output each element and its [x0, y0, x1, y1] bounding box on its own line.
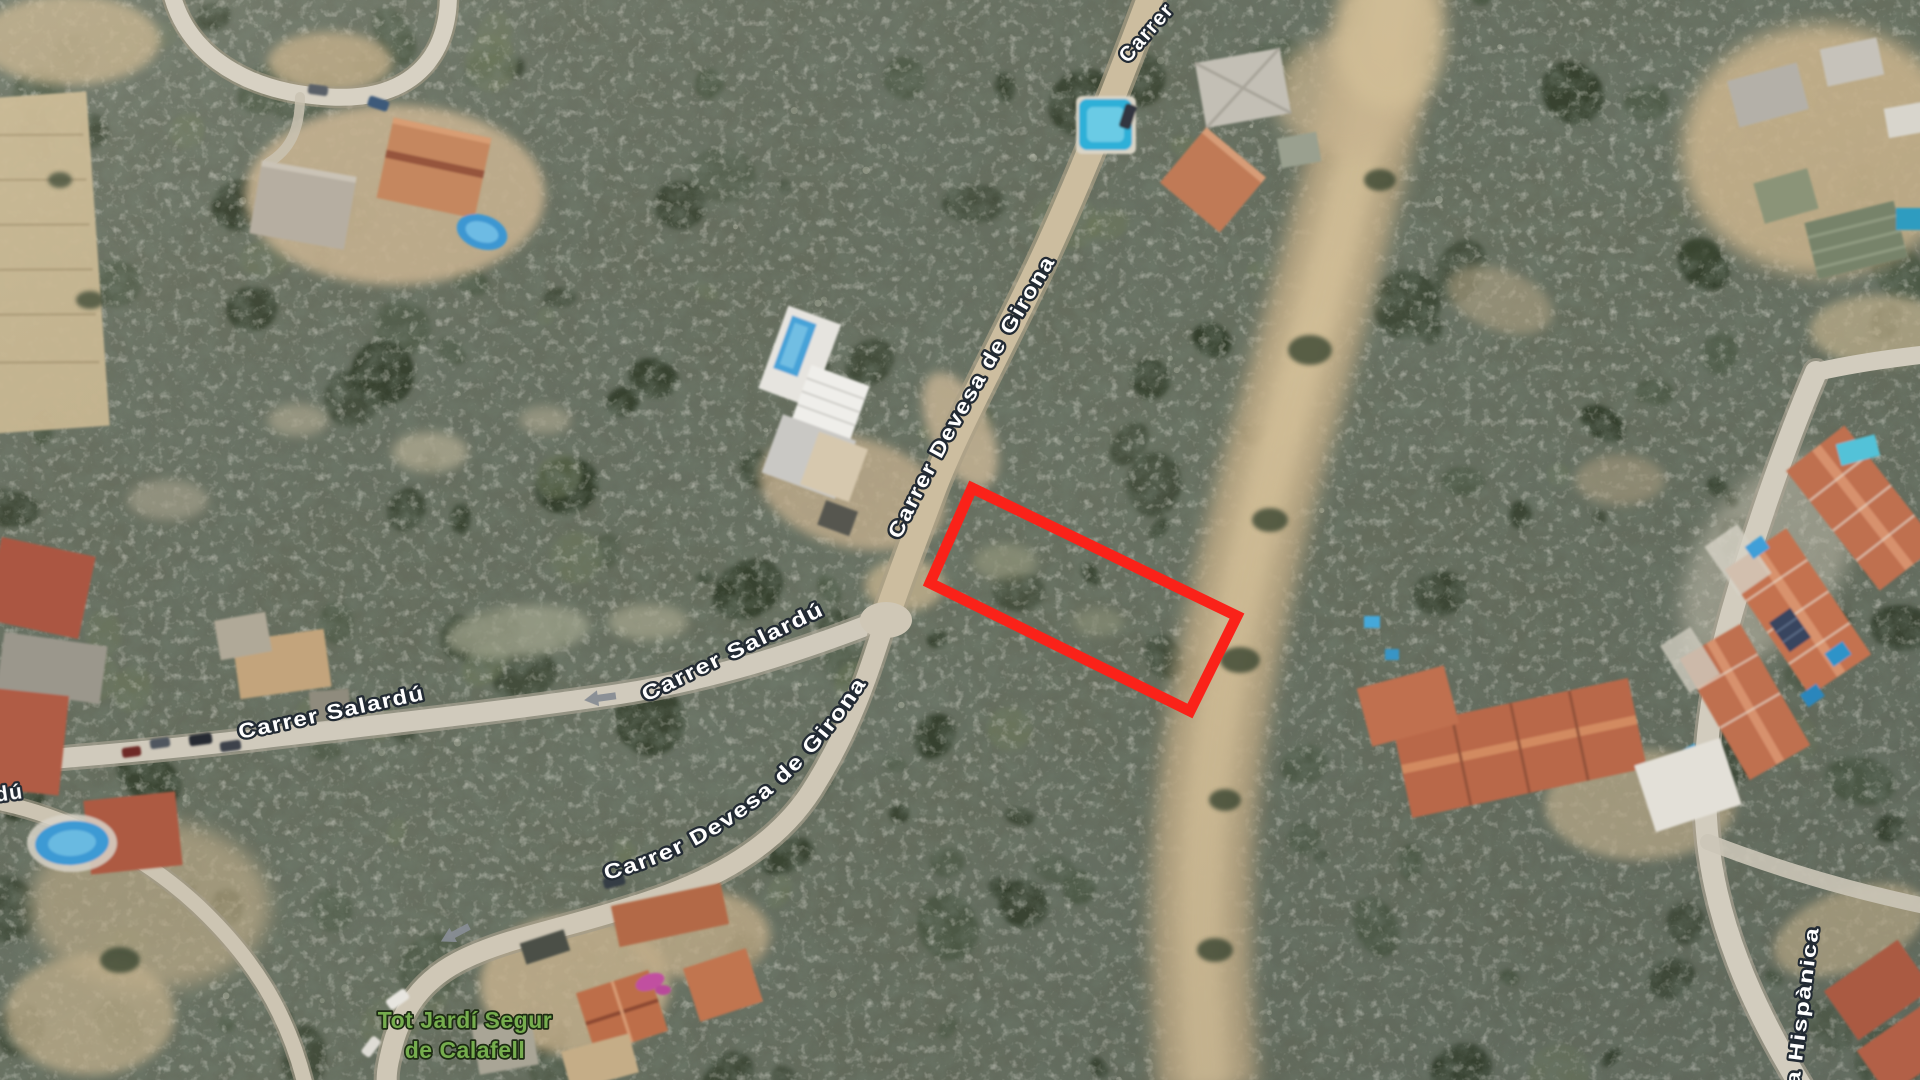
lighting-tone-overlay	[0, 0, 1920, 1080]
swimming-pool	[1896, 208, 1920, 230]
satellite-map-canvas[interactable]: Carrer Carrer Devesa de Girona Carrer De…	[0, 0, 1920, 1080]
swimming-pool	[1385, 649, 1399, 660]
swimming-pool	[1364, 616, 1380, 628]
poi-label-line2[interactable]: de Calafell	[405, 1037, 526, 1063]
poi-label-line1[interactable]: Tot Jardí Segur	[378, 1007, 553, 1033]
bougainvillea-bush	[655, 985, 671, 995]
building-roof-orange	[0, 689, 69, 796]
street-label-partial-left: dú	[0, 780, 25, 807]
aerial-imagery[interactable]: Carrer Carrer Devesa de Girona Carrer De…	[0, 0, 1920, 1080]
road-junction	[860, 602, 912, 638]
terrain-layer	[0, 0, 1920, 1080]
